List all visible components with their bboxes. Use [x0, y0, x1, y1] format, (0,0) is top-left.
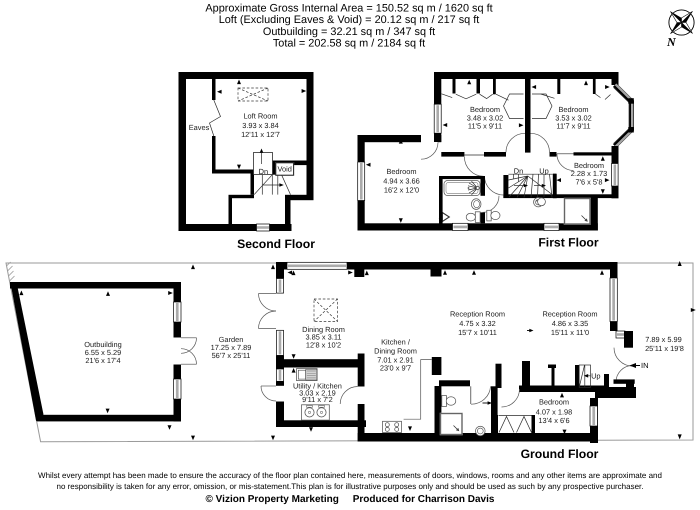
- svg-text:Eaves: Eaves: [189, 123, 210, 132]
- svg-text:Dn: Dn: [514, 167, 523, 176]
- svg-text:Second Floor: Second Floor: [237, 237, 315, 251]
- svg-text:12'8 x 10'2: 12'8 x 10'2: [306, 340, 341, 349]
- svg-text:15'11 x 11'0: 15'11 x 11'0: [551, 328, 589, 337]
- svg-text:Approximate Gross Internal Are: Approximate Gross Internal Area = 150.52…: [205, 3, 492, 15]
- svg-text:N: N: [666, 35, 677, 49]
- svg-text:IN: IN: [641, 361, 649, 370]
- svg-text:Dn: Dn: [259, 167, 268, 176]
- svg-text:Up: Up: [539, 167, 548, 176]
- svg-text:Up: Up: [591, 372, 600, 381]
- svg-text:Outbuilding = 32.21 sq m / 347: Outbuilding = 32.21 sq m / 347 sq ft: [263, 26, 435, 38]
- svg-text:Kitchen /: Kitchen /: [381, 338, 411, 347]
- svg-text:Ground Floor: Ground Floor: [521, 447, 599, 461]
- svg-text:Total = 202.58 sq m / 2184 sq: Total = 202.58 sq m / 2184 sq ft: [273, 37, 425, 49]
- svg-text:25'11 x 19'8: 25'11 x 19'8: [645, 344, 684, 353]
- svg-text:no responsibility is taken for: no responsibility is taken for any error…: [57, 482, 644, 491]
- svg-text:Dining Room: Dining Room: [374, 346, 417, 355]
- svg-text:11'5 x 9'11: 11'5 x 9'11: [468, 122, 502, 131]
- svg-text:4.86 x 3.35: 4.86 x 3.35: [552, 319, 589, 328]
- svg-text:Reception Room: Reception Room: [542, 310, 597, 319]
- svg-text:Reception Room: Reception Room: [450, 310, 505, 319]
- svg-text:15'7 x 10'11: 15'7 x 10'11: [458, 328, 497, 337]
- svg-text:4.94 x 3.66: 4.94 x 3.66: [383, 176, 420, 185]
- svg-text:First Floor: First Floor: [538, 236, 599, 250]
- svg-text:© Vizion Property Marketing: © Vizion Property Marketing Produced for…: [206, 494, 495, 505]
- svg-text:Bedroom: Bedroom: [387, 167, 417, 176]
- svg-text:Void: Void: [278, 165, 292, 174]
- svg-text:Loft Room: Loft Room: [243, 112, 277, 121]
- svg-text:Bedroom: Bedroom: [539, 398, 569, 407]
- svg-text:11'7 x 9'11: 11'7 x 9'11: [556, 122, 590, 131]
- svg-text:Whilst every attempt has been: Whilst every attempt has been made to en…: [38, 471, 662, 480]
- svg-text:23'0 x 9'7: 23'0 x 9'7: [380, 364, 411, 373]
- svg-text:16'2 x 12'0: 16'2 x 12'0: [384, 185, 419, 194]
- svg-text:13'4 x 6'6: 13'4 x 6'6: [538, 416, 569, 425]
- svg-text:56'7 x 25'11: 56'7 x 25'11: [212, 351, 251, 360]
- svg-text:21'6 x 17'4: 21'6 x 17'4: [85, 356, 120, 365]
- svg-text:9'11 x 7'2: 9'11 x 7'2: [302, 395, 333, 404]
- svg-text:3.93 x 3.84: 3.93 x 3.84: [242, 121, 279, 130]
- svg-text:Loft (Excluding Eaves & Void): Loft (Excluding Eaves & Void) = 20.12 sq…: [219, 14, 480, 26]
- svg-text:12'11 x 12'7: 12'11 x 12'7: [241, 130, 280, 139]
- svg-text:7'6 x 5'8: 7'6 x 5'8: [575, 177, 602, 186]
- svg-text:4.75 x 3.32: 4.75 x 3.32: [459, 319, 496, 328]
